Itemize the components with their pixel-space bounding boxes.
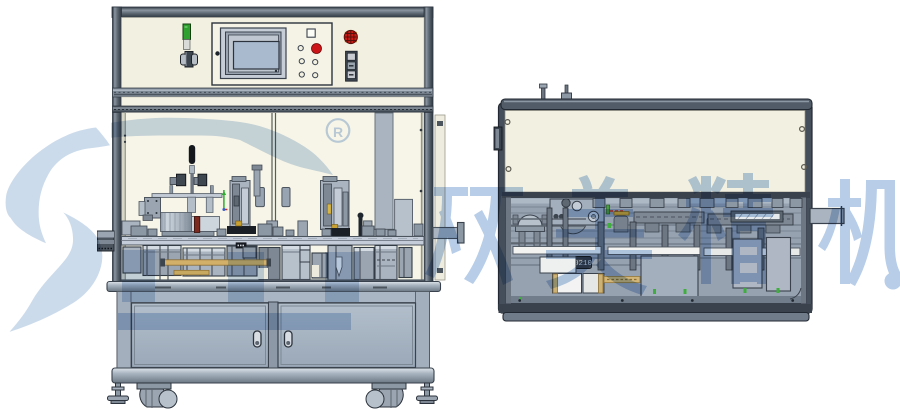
svg-text:R: R: [333, 124, 343, 140]
